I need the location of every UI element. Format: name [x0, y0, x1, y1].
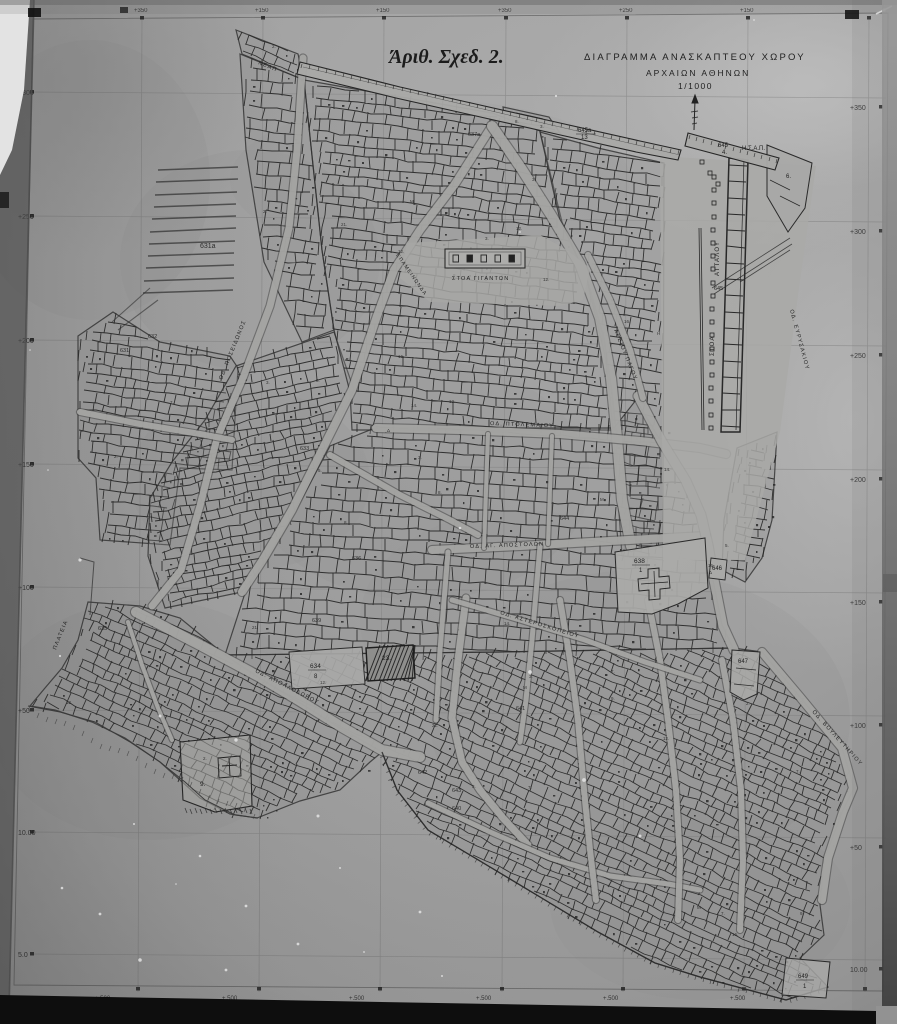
svg-text:639: 639	[312, 618, 321, 624]
svg-text:643: 643	[452, 788, 461, 794]
svg-text:8.: 8.	[515, 119, 519, 124]
svg-text:13: 13	[581, 135, 588, 141]
svg-text:7.: 7.	[611, 669, 615, 674]
svg-text:5.0: 5.0	[18, 952, 28, 959]
svg-text:2.: 2.	[272, 44, 276, 49]
svg-text:Μ: Μ	[523, 685, 527, 690]
svg-text:3.: 3.	[472, 784, 476, 789]
svg-text:9.: 9.	[800, 911, 804, 916]
svg-text:Μ: Μ	[410, 199, 414, 204]
svg-text:1/1000: 1/1000	[678, 81, 713, 91]
svg-text:14.: 14.	[504, 621, 510, 626]
svg-text:631a: 631a	[200, 243, 216, 250]
svg-text:2.: 2.	[746, 701, 750, 706]
svg-text:637a: 637a	[468, 132, 481, 138]
svg-text:ΣΤΟΑ ΓΙΓΑΝΤΩΝ: ΣΤΟΑ ΓΙΓΑΝΤΩΝ	[452, 276, 509, 282]
svg-text:8.: 8.	[344, 520, 348, 525]
svg-text:640: 640	[452, 806, 461, 812]
svg-text:14.: 14.	[411, 403, 417, 408]
svg-text:649: 649	[798, 974, 809, 980]
svg-text:2.: 2.	[203, 756, 207, 761]
svg-text:6.: 6.	[786, 174, 791, 180]
svg-text:+.500: +.500	[603, 996, 619, 1002]
svg-text:635: 635	[98, 626, 107, 632]
svg-text:2.: 2.	[114, 454, 118, 459]
svg-text:ΣΤΟΑ: ΣΤΟΑ	[710, 335, 716, 356]
svg-text:Δ: Δ	[709, 570, 712, 575]
svg-text:16.: 16.	[624, 319, 630, 324]
svg-text:636: 636	[352, 556, 361, 562]
svg-text:12.: 12.	[543, 277, 549, 282]
svg-text:7.: 7.	[528, 785, 532, 790]
svg-text:Άριθ. Σχεδ. 2.: Άριθ. Σχεδ. 2.	[387, 46, 504, 68]
svg-text:Μ: Μ	[697, 905, 701, 910]
svg-text:647: 647	[738, 659, 749, 665]
svg-text:644: 644	[560, 516, 569, 522]
svg-text:16.: 16.	[732, 932, 738, 937]
svg-text:ΔΙΑΓΡΑΜΜΑ ΑΝΑΣΚΑΠΤΕΟΥ ΧΩΡΟΥ: ΔΙΑΓΡΑΜΜΑ ΑΝΑΣΚΑΠΤΕΟΥ ΧΩΡΟΥ	[584, 52, 806, 63]
svg-text:+.500: +.500	[349, 996, 365, 1002]
svg-text:21.: 21.	[252, 625, 258, 630]
svg-text:645: 645	[718, 143, 729, 149]
svg-text:16.: 16.	[708, 563, 714, 568]
svg-text:3.: 3.	[532, 177, 536, 182]
svg-text:7.: 7.	[721, 911, 725, 916]
svg-text:4.: 4.	[722, 150, 727, 156]
svg-text:12.: 12.	[398, 249, 404, 254]
svg-text:16.: 16.	[398, 354, 404, 359]
svg-text:Μ: Μ	[600, 497, 604, 502]
svg-text:638: 638	[634, 558, 645, 565]
svg-text:14.: 14.	[664, 467, 670, 472]
svg-text:+50: +50	[18, 708, 30, 715]
svg-text:12.: 12.	[320, 680, 326, 685]
svg-text:3.: 3.	[529, 674, 533, 679]
svg-text:631: 631	[120, 348, 129, 354]
svg-text:634: 634	[310, 663, 321, 670]
svg-text:7.: 7.	[170, 400, 174, 405]
svg-text:Δ: Δ	[387, 428, 390, 433]
svg-text:9.: 9.	[200, 781, 206, 788]
svg-text:3.: 3.	[540, 124, 544, 129]
svg-text:8.: 8.	[438, 490, 442, 495]
svg-text:642: 642	[418, 770, 427, 776]
svg-text:12.: 12.	[66, 700, 72, 705]
svg-text:645a: 645a	[578, 128, 592, 134]
svg-text:12.: 12.	[449, 399, 455, 404]
svg-text:5.: 5.	[725, 543, 729, 548]
svg-text:641: 641	[516, 706, 525, 712]
svg-text:8.: 8.	[316, 378, 320, 383]
svg-text:21.: 21.	[341, 222, 347, 227]
svg-text:12.: 12.	[516, 226, 522, 231]
svg-text:3.: 3.	[485, 236, 489, 241]
svg-text:+.500: +.500	[730, 996, 746, 1002]
svg-text:2.: 2.	[263, 209, 267, 214]
svg-text:3.: 3.	[266, 380, 270, 385]
svg-text:Η.Σ.Α.Π.: Η.Σ.Α.Π.	[742, 146, 765, 152]
svg-text:ΑΤΤΑΛΟΥ: ΑΤΤΑΛΟΥ	[715, 241, 721, 276]
svg-text:23.: 23.	[382, 655, 391, 662]
svg-text:7.: 7.	[796, 769, 800, 774]
svg-text:12.: 12.	[663, 736, 669, 741]
svg-text:9.: 9.	[611, 696, 615, 701]
svg-text:Η: Η	[657, 331, 660, 336]
svg-text:21.: 21.	[432, 723, 438, 728]
svg-text:5.: 5.	[318, 468, 322, 473]
svg-text:ΑΡΧΑΙΩΝ ΑΘΗΝΩΝ: ΑΡΧΑΙΩΝ ΑΘΗΝΩΝ	[646, 68, 750, 78]
svg-text:+.500: +.500	[476, 996, 492, 1002]
svg-text:632: 632	[148, 334, 157, 340]
svg-text:3.: 3.	[418, 455, 422, 460]
svg-text:633: 633	[300, 446, 309, 452]
